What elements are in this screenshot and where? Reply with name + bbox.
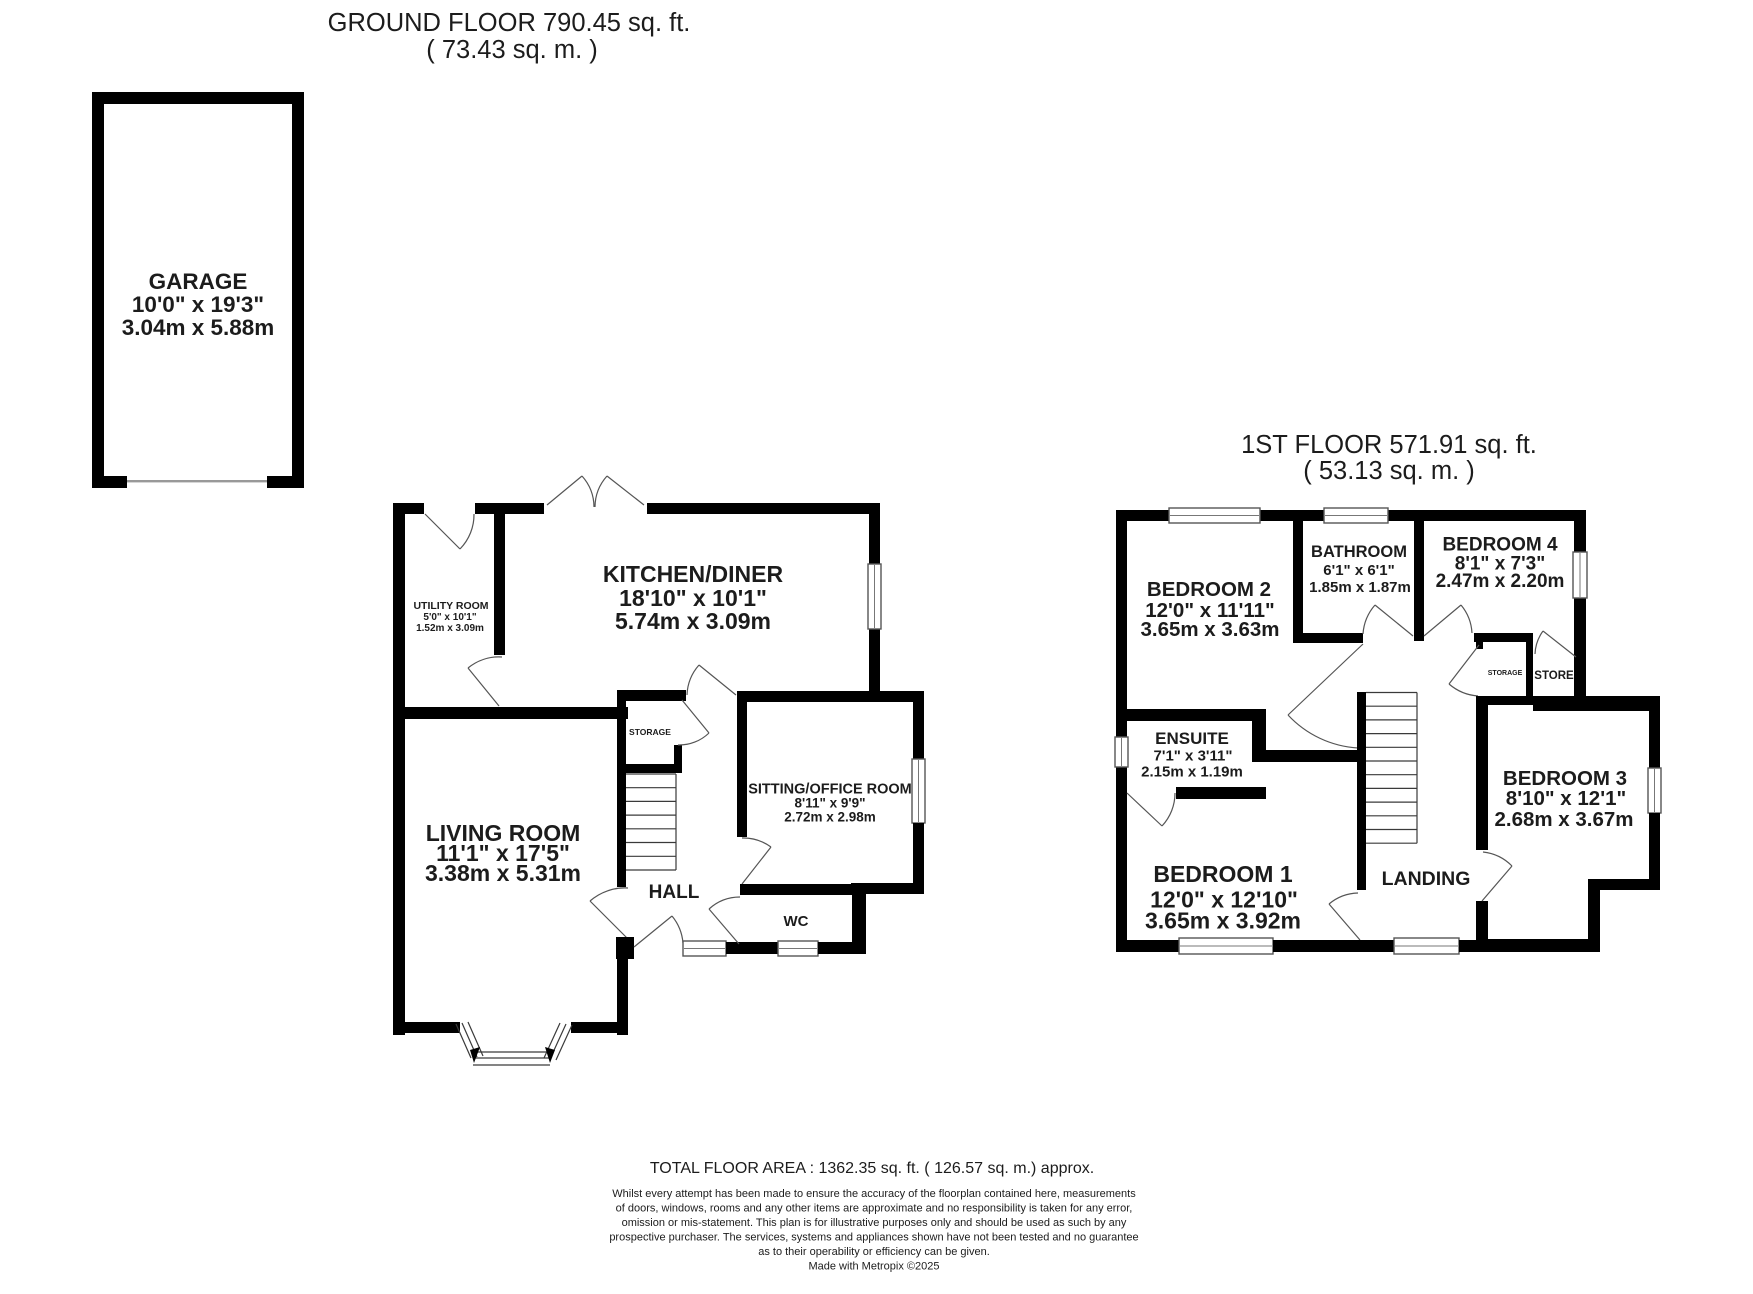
svg-text:2.72m x 2.98m: 2.72m x 2.98m xyxy=(784,810,876,825)
svg-text:WC: WC xyxy=(784,913,809,930)
svg-text:10'0" x 19'3": 10'0" x 19'3" xyxy=(132,292,264,317)
svg-text:GROUND FLOOR 790.45 sq. ft.: GROUND FLOOR 790.45 sq. ft. xyxy=(328,9,691,37)
svg-text:GARAGE: GARAGE xyxy=(149,269,248,294)
svg-text:2.15m x 1.19m: 2.15m x 1.19m xyxy=(1141,764,1243,781)
svg-text:BEDROOM 1: BEDROOM 1 xyxy=(1153,861,1293,887)
svg-text:( 73.43 sq. m. ): ( 73.43 sq. m. ) xyxy=(426,36,597,64)
svg-text:Whilst every attempt has been: Whilst every attempt has been made to en… xyxy=(612,1188,1136,1200)
svg-text:HALL: HALL xyxy=(649,882,700,903)
svg-text:1.52m x 3.09m: 1.52m x 3.09m xyxy=(416,623,484,634)
svg-text:TOTAL FLOOR AREA : 1362.35 sq.: TOTAL FLOOR AREA : 1362.35 sq. ft. ( 126… xyxy=(650,1160,1094,1177)
svg-text:as to their operability or eff: as to their operability or efficiency ca… xyxy=(758,1246,990,1258)
svg-text:prospective purchaser. The ser: prospective purchaser. The services, sys… xyxy=(609,1232,1138,1244)
svg-text:7'1" x 3'11": 7'1" x 3'11" xyxy=(1154,748,1233,765)
svg-text:STORE: STORE xyxy=(1534,670,1574,682)
svg-text:omission or mis-statement. Thi: omission or mis-statement. This plan is … xyxy=(622,1217,1127,1229)
svg-text:3.65m x 3.63m: 3.65m x 3.63m xyxy=(1140,618,1279,641)
svg-text:STORAGE: STORAGE xyxy=(629,727,671,737)
svg-text:STORAGE: STORAGE xyxy=(1488,670,1523,677)
svg-text:KITCHEN/DINER: KITCHEN/DINER xyxy=(603,561,784,587)
svg-text:8'11" x 9'9": 8'11" x 9'9" xyxy=(794,796,865,811)
svg-text:3.04m x 5.88m: 3.04m x 5.88m xyxy=(122,315,275,340)
svg-text:BEDROOM 4: BEDROOM 4 xyxy=(1442,535,1558,556)
svg-text:( 53.13 sq. m. ): ( 53.13 sq. m. ) xyxy=(1303,457,1474,485)
svg-text:LANDING: LANDING xyxy=(1382,868,1471,890)
svg-text:of doors, windows, rooms and a: of doors, windows, rooms and any other i… xyxy=(616,1203,1133,1215)
svg-text:Made with Metropix ©2025: Made with Metropix ©2025 xyxy=(808,1261,939,1273)
svg-text:ENSUITE: ENSUITE xyxy=(1155,729,1229,748)
svg-text:3.65m x 3.92m: 3.65m x 3.92m xyxy=(1145,908,1301,934)
svg-text:5'0" x 10'1": 5'0" x 10'1" xyxy=(423,612,476,623)
svg-text:BATHROOM: BATHROOM xyxy=(1311,543,1407,561)
svg-text:2.68m x 3.67m: 2.68m x 3.67m xyxy=(1494,808,1633,831)
svg-text:2.47m x 2.20m: 2.47m x 2.20m xyxy=(1436,571,1565,592)
svg-text:8'10" x 12'1": 8'10" x 12'1" xyxy=(1506,787,1626,810)
svg-text:BEDROOM 2: BEDROOM 2 xyxy=(1147,578,1271,601)
svg-text:UTILITY ROOM: UTILITY ROOM xyxy=(413,600,488,612)
svg-text:1.85m x 1.87m: 1.85m x 1.87m xyxy=(1309,579,1411,596)
svg-text:1ST FLOOR 571.91 sq. ft.: 1ST FLOOR 571.91 sq. ft. xyxy=(1241,431,1537,459)
svg-text:5.74m x 3.09m: 5.74m x 3.09m xyxy=(615,608,771,634)
svg-text:6'1" x 6'1": 6'1" x 6'1" xyxy=(1323,562,1394,579)
svg-text:3.38m x 5.31m: 3.38m x 5.31m xyxy=(425,860,581,886)
